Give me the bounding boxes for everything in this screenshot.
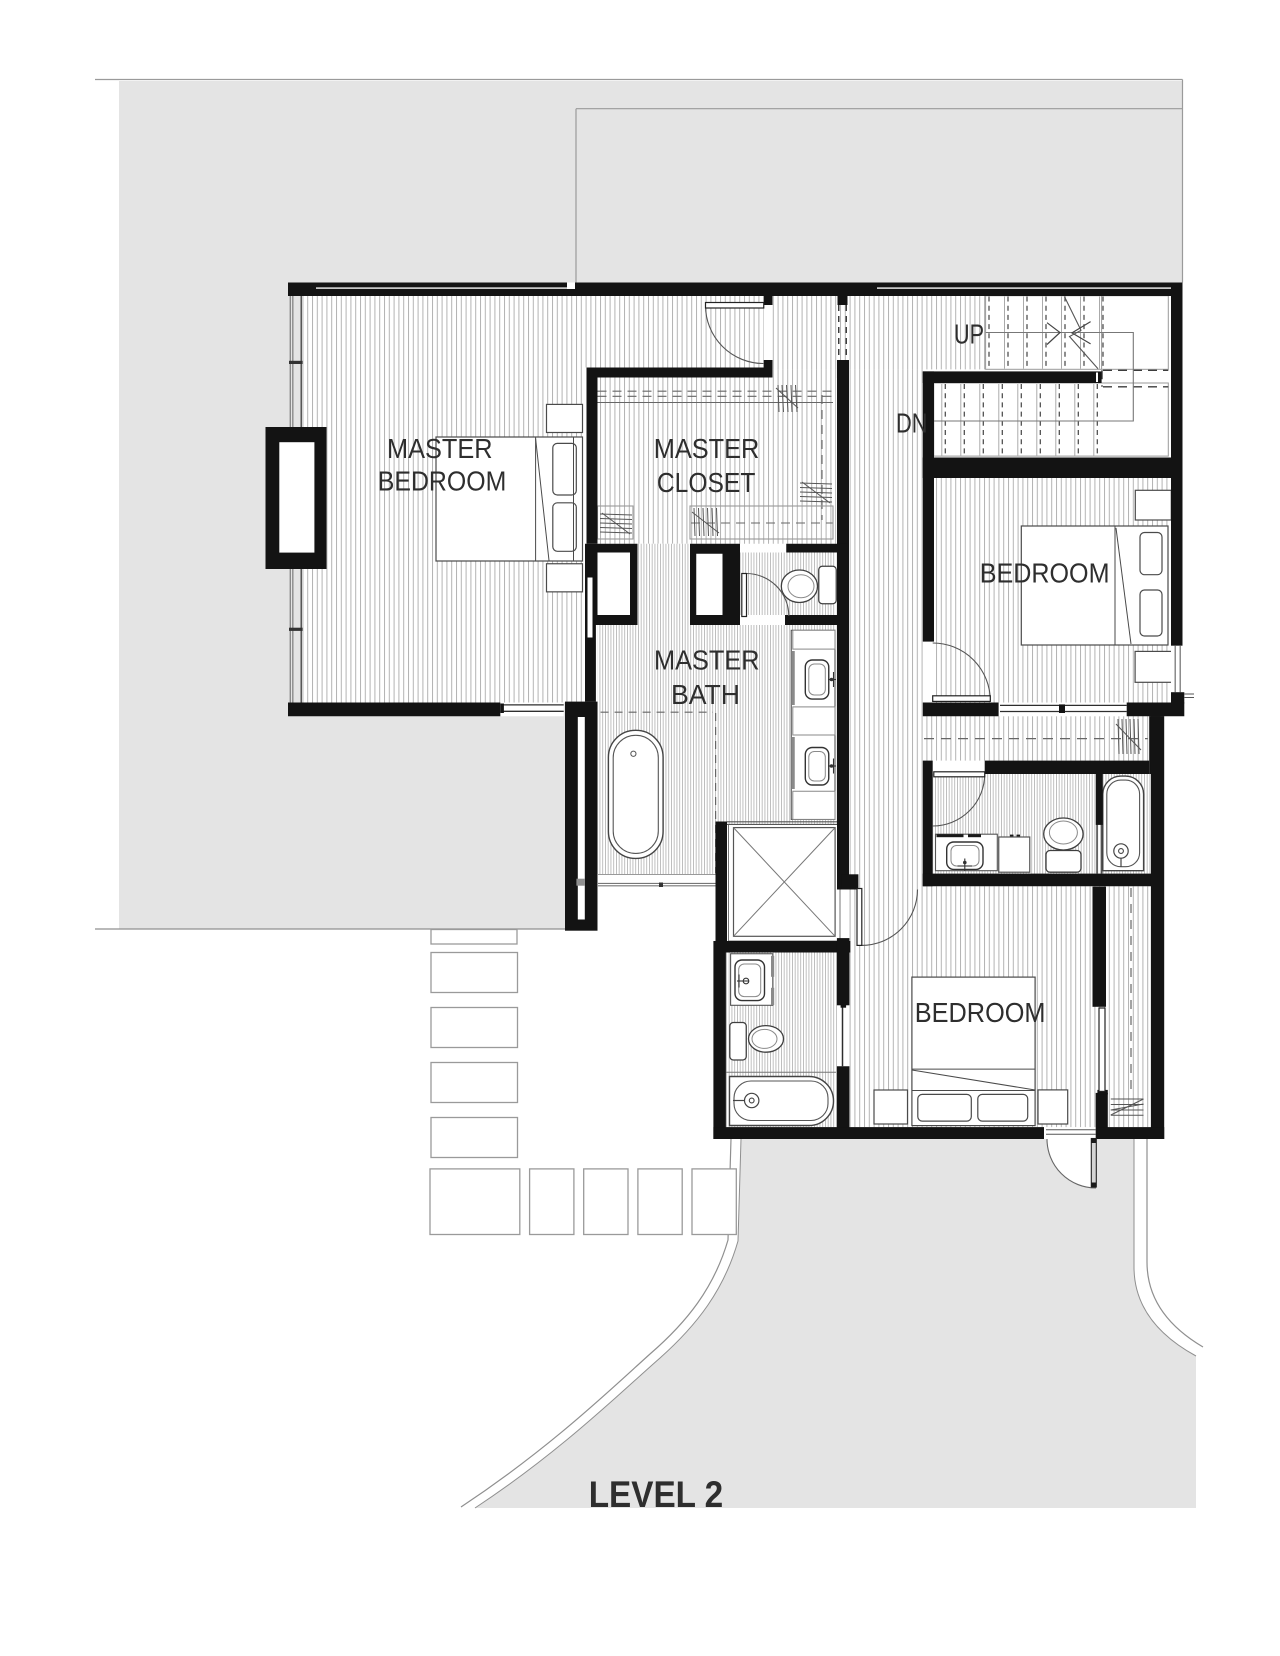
- svg-text:DN: DN: [896, 407, 928, 439]
- svg-text:BEDROOM: BEDROOM: [378, 465, 507, 497]
- svg-text:BEDROOM: BEDROOM: [915, 996, 1046, 1028]
- svg-text:CLOSET: CLOSET: [657, 466, 756, 498]
- svg-text:MASTER: MASTER: [654, 644, 760, 676]
- svg-text:MASTER: MASTER: [654, 432, 760, 464]
- svg-text:LEVEL 2: LEVEL 2: [589, 1474, 724, 1515]
- svg-text:MASTER: MASTER: [387, 432, 493, 464]
- svg-text:BEDROOM: BEDROOM: [980, 557, 1110, 589]
- svg-text:BATH: BATH: [671, 678, 740, 710]
- svg-text:UP: UP: [954, 318, 984, 350]
